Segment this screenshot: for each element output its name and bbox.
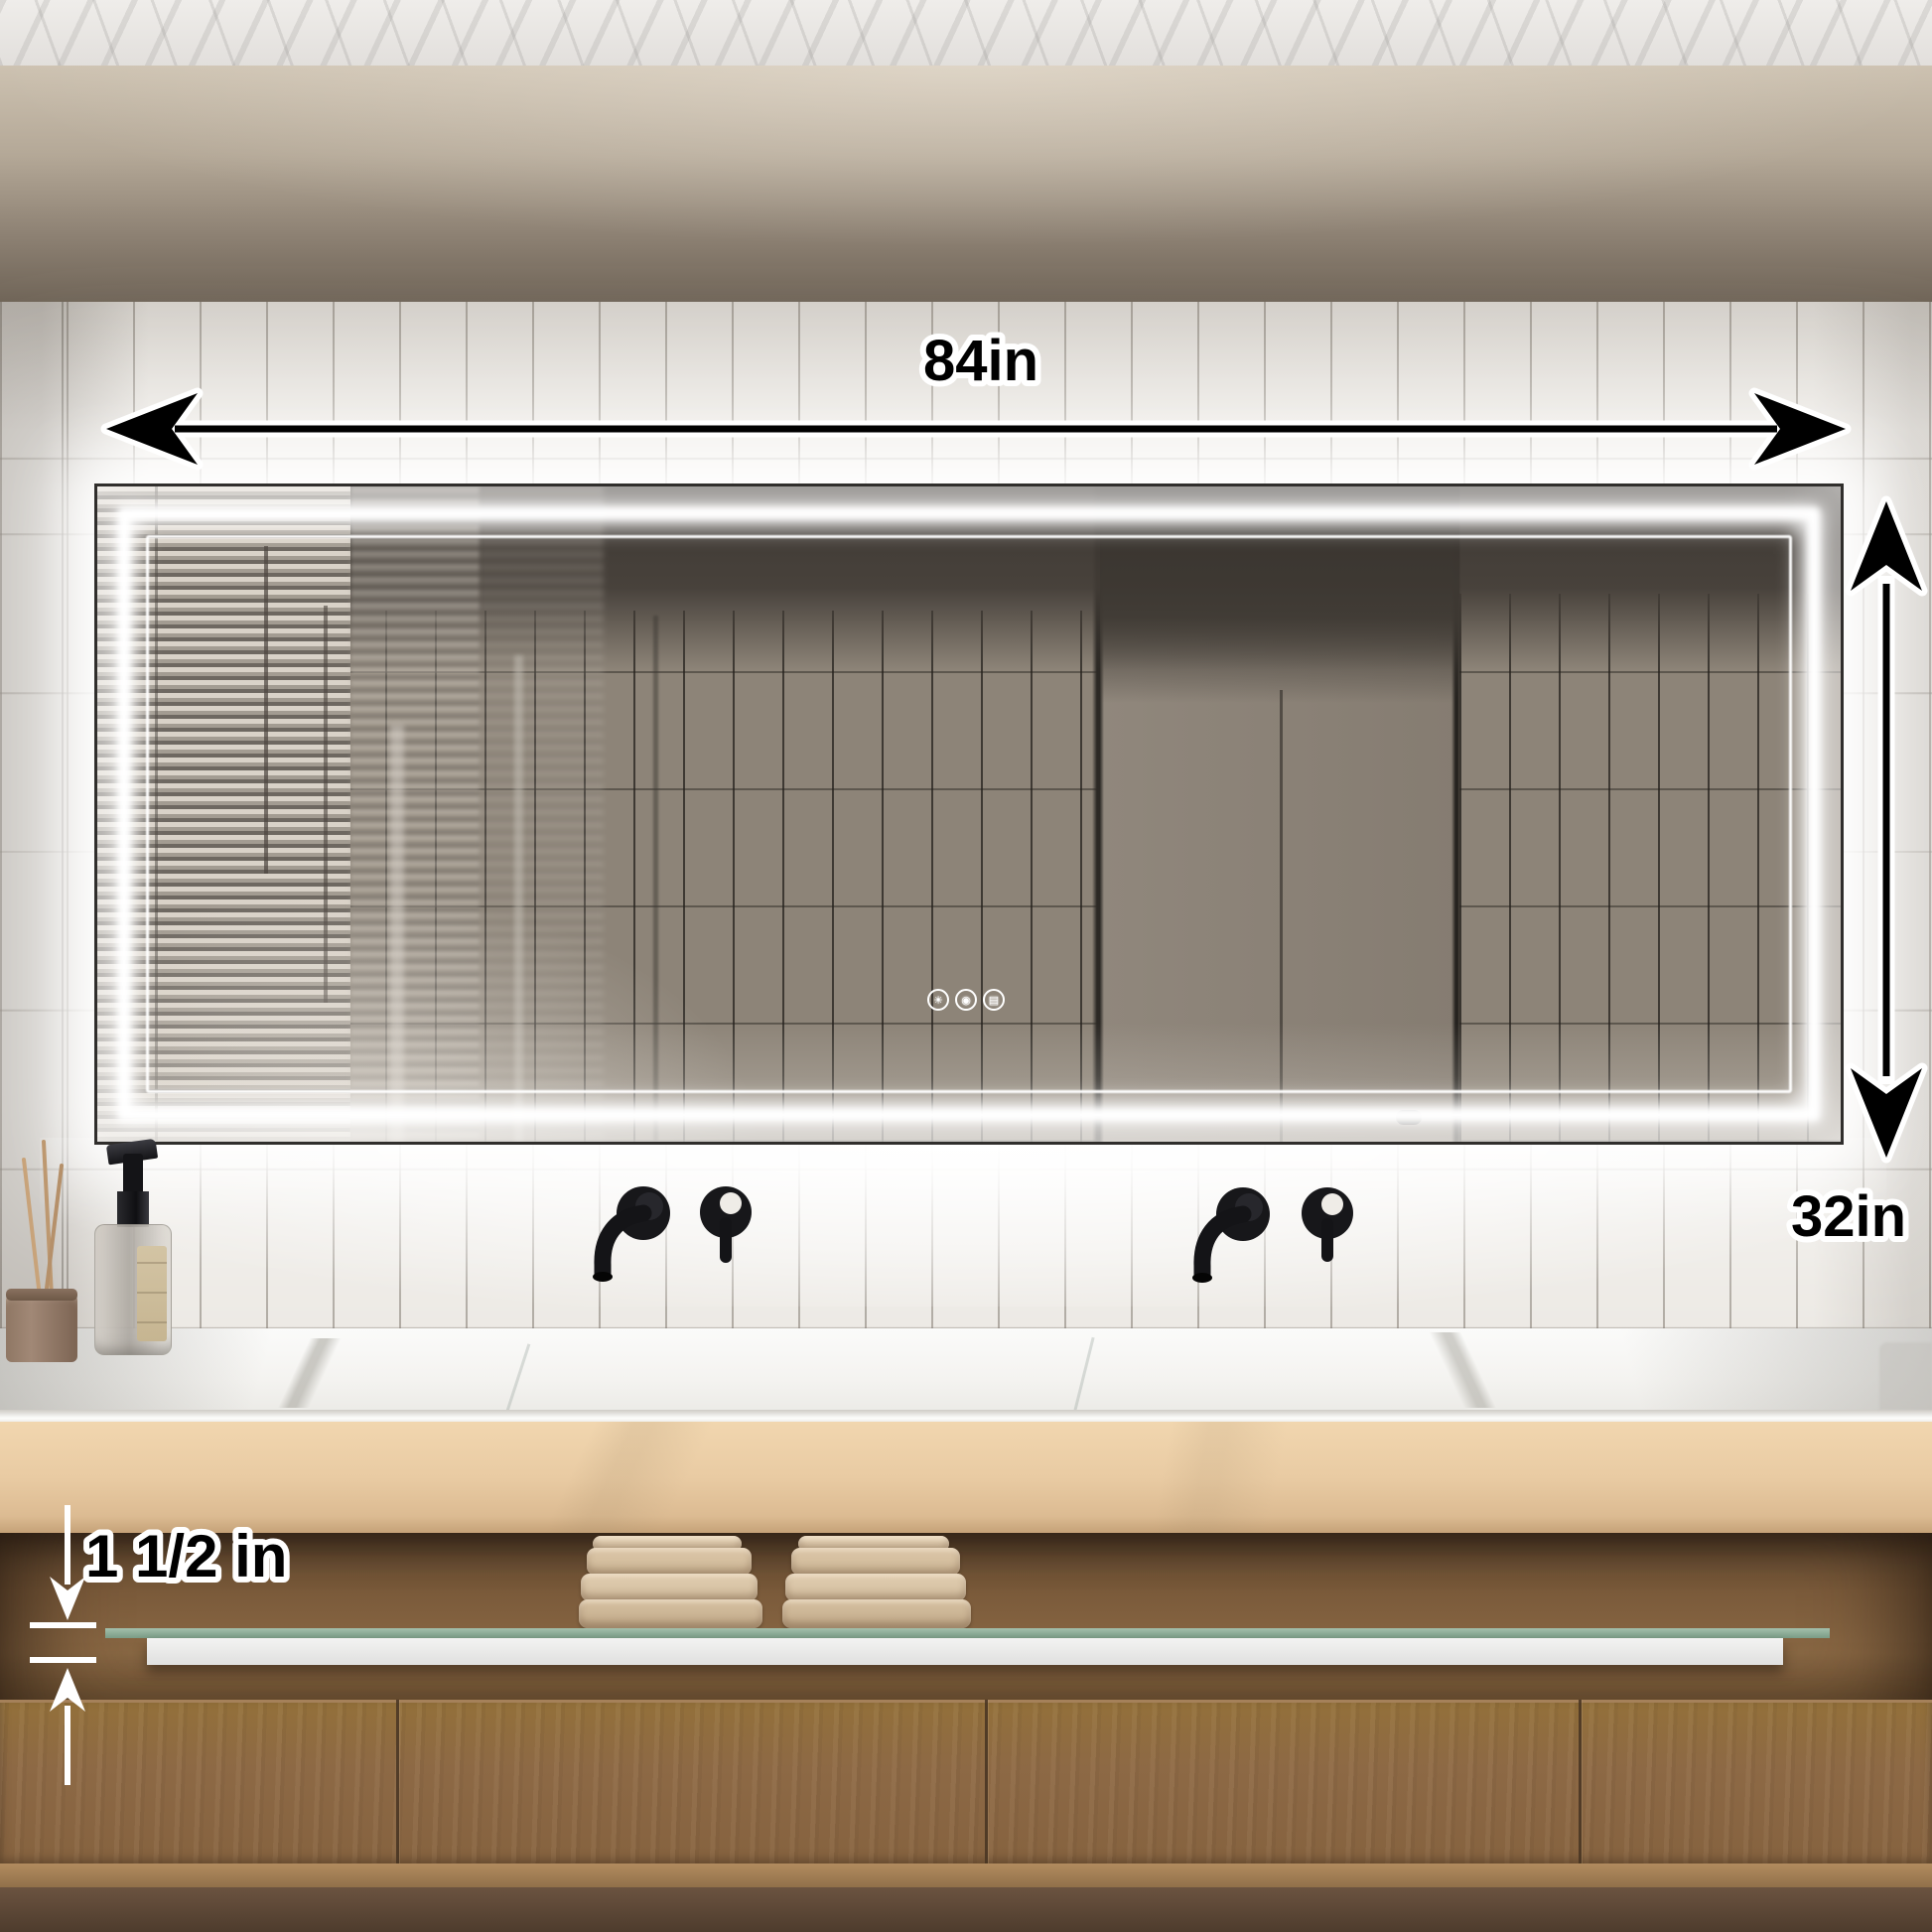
light-icon[interactable]: ◉ bbox=[955, 989, 977, 1011]
counter-front-edge bbox=[0, 1410, 1932, 1422]
vanity-drawers bbox=[0, 1700, 1932, 1866]
drawer-seam bbox=[396, 1700, 399, 1863]
folded-towel bbox=[581, 1574, 758, 1601]
glass-edge-glow bbox=[97, 486, 1841, 1142]
defog-icon[interactable]: ▤ bbox=[983, 989, 1005, 1011]
bathroom-mirror-product-photo: ☀ ◉ ▤ bbox=[0, 0, 1932, 1932]
drawer-seam bbox=[1579, 1700, 1582, 1863]
edge-bottle bbox=[1879, 1342, 1932, 1410]
folded-towel bbox=[782, 1599, 971, 1628]
folded-towel bbox=[791, 1548, 960, 1576]
towel-stack bbox=[782, 1536, 971, 1628]
mirror-touch-controls: ☀ ◉ ▤ bbox=[927, 989, 1056, 1015]
folded-towel bbox=[579, 1599, 762, 1628]
towel-stack bbox=[579, 1536, 762, 1628]
vanity-base-ledge bbox=[0, 1863, 1932, 1887]
folded-towel bbox=[785, 1574, 966, 1601]
folded-towel bbox=[587, 1548, 752, 1576]
ceiling-marble-strip bbox=[0, 0, 1932, 66]
soffit-band bbox=[0, 66, 1932, 302]
counter-fascia bbox=[0, 1422, 1932, 1533]
led-mirror: ☀ ◉ ▤ bbox=[94, 483, 1844, 1145]
brightness-icon[interactable]: ☀ bbox=[927, 989, 949, 1011]
left-sink-basin bbox=[149, 1338, 467, 1408]
reed-diffuser-lid bbox=[6, 1289, 77, 1301]
right-sink-basin bbox=[1301, 1332, 1628, 1408]
backsplash-glow bbox=[40, 1138, 1886, 1307]
reed-diffuser bbox=[6, 1293, 77, 1362]
glass-shelf-edge bbox=[105, 1628, 1830, 1638]
soap-bottle-collar bbox=[117, 1191, 149, 1227]
shelf-front-panel bbox=[147, 1638, 1783, 1665]
soap-label bbox=[137, 1246, 167, 1341]
vanity-toe-kick bbox=[0, 1887, 1932, 1932]
soap-pump-neck bbox=[123, 1154, 143, 1195]
drawer-seam bbox=[985, 1700, 988, 1863]
